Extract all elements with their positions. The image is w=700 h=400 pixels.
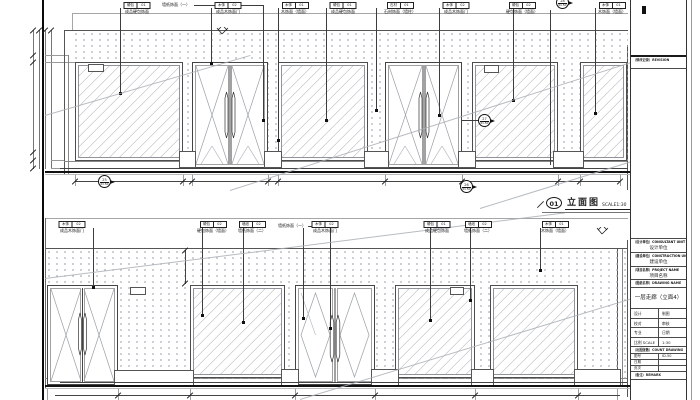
double-door — [385, 62, 462, 168]
revision-header: （修改记录）REVISION — [631, 57, 686, 68]
material-tag: 石材01 石材饰面（墙柱） — [384, 2, 416, 14]
consultant-label-en: （设计单位）CONSULTANT UNIT — [631, 239, 686, 245]
floor-line-light — [45, 174, 630, 175]
material-tag: 硬包01 成品硬包饰面 — [424, 221, 451, 233]
material-tag-text: 墙纸饰面（一） — [162, 2, 190, 7]
tag-label: 成品木饰面门 — [59, 228, 86, 233]
tag-code-box: 02 — [214, 221, 227, 228]
tag-code-box: 硬包 — [200, 221, 214, 228]
tag-code-box: 木饰 — [282, 2, 296, 9]
panel-vent — [450, 287, 464, 295]
tag-code-box: 02 — [73, 221, 86, 228]
top-cornice-step — [72, 13, 73, 30]
title-block-stamp — [642, 6, 646, 14]
floor-line-thick — [45, 171, 630, 173]
tag-code-box: 01 — [438, 221, 451, 228]
tag-leader — [278, 8, 279, 140]
tag-label: 硬包饰面（墙面） — [506, 9, 538, 14]
glazed-panel — [278, 62, 368, 161]
count-header: （出图张数）COUNT DRAWING — [631, 346, 686, 353]
tag-label: 成品木饰面门 — [312, 228, 339, 233]
title-block: （修改记录）REVISION （设计单位）CONSULTANT UNIT 设计单… — [630, 0, 687, 400]
staff-cell: 制图 — [659, 309, 686, 318]
staff-cell: 设计 — [631, 309, 659, 318]
double-door — [47, 285, 118, 385]
panel-vent — [88, 64, 104, 72]
tag-label: 成品木饰面门 — [215, 9, 242, 14]
dim-line — [39, 30, 40, 169]
wall-vent — [130, 287, 146, 295]
elevation-title-text: 立面图 — [567, 195, 600, 208]
drawing-name-header: （图纸名称）DRAWING NAME — [631, 279, 686, 287]
tag-code-box: 02 — [479, 221, 492, 228]
tag-leader — [202, 228, 203, 315]
material-tag: 墙纸02 墙纸饰面（二） — [238, 221, 266, 233]
tag-code-box: 01 — [401, 2, 414, 9]
door-symbol — [47, 285, 118, 385]
floor-line — [60, 168, 628, 169]
glazed-panel — [395, 285, 475, 378]
detail-marker: 25 ID-50 — [98, 175, 111, 188]
baseboard-line — [64, 161, 627, 162]
tag-label: 墙纸饰面（二） — [238, 228, 266, 233]
title-slash — [537, 201, 544, 208]
dim-extension — [45, 62, 75, 63]
construction-label-cn: 建设单位 — [631, 259, 686, 266]
detail-leader — [462, 120, 478, 121]
dim-extension — [51, 160, 64, 161]
staff-row: 设计 制图 — [631, 308, 686, 318]
tag-code-box: 硬包 — [509, 2, 523, 9]
tag-code-box: 01 — [296, 2, 309, 9]
detail-marker: 28 ID-50 — [556, 0, 569, 9]
staff-cell: 比例 SCALE — [631, 338, 659, 346]
door-symbol — [192, 62, 268, 168]
tag-label: 硬包饰面（墙面） — [197, 228, 229, 233]
panel-vent — [484, 65, 499, 73]
construction-row: （建设单位）CONSTRUCTION UNIT 建设单位 — [631, 252, 686, 266]
base-block — [371, 369, 399, 386]
tag-code-box: 02 — [457, 2, 470, 9]
tag-leader — [595, 8, 596, 113]
staff-cell: 专业 — [631, 328, 659, 337]
remark-header: （备注）REMARK — [631, 371, 686, 379]
floor-line — [60, 382, 627, 383]
door-symbol — [385, 62, 462, 168]
sheet-right-edge — [691, 0, 692, 400]
tag-code-box: 01 — [556, 221, 569, 228]
base-block — [281, 369, 299, 386]
tag-label: 成品木饰面门 — [443, 9, 470, 14]
tag-leader — [93, 228, 94, 287]
detail-marker: 27 ID-50 — [478, 114, 491, 127]
remark-area — [631, 379, 686, 400]
staff-cell: 日期 — [659, 328, 686, 337]
revision-area — [631, 68, 686, 238]
material-tag: 木饰01 木饰面（墙面） — [541, 221, 569, 233]
construction-label-en: （建设单位）CONSTRUCTION UNIT — [631, 253, 686, 259]
base-block — [471, 369, 494, 386]
tag-label: 石材饰面（墙柱） — [384, 9, 416, 14]
tag-code-box: 02 — [229, 2, 242, 9]
material-tag: 木饰02 成品木饰面门 — [215, 2, 242, 14]
material-tag: 木饰02 成品木饰面门 — [312, 221, 339, 233]
datum-arrow-icon — [216, 27, 230, 36]
tag-code-box: 木饰 — [312, 221, 326, 228]
base-block — [574, 369, 621, 386]
tag-code-box: 01 — [344, 2, 357, 9]
material-tag: 墙纸02 墙纸饰面（二） — [464, 221, 492, 233]
tag-leader — [513, 8, 514, 100]
tag-leader — [430, 228, 431, 320]
tag-code-box: 02 — [523, 2, 536, 9]
tag-leader — [120, 8, 121, 93]
double-door — [295, 285, 375, 385]
staff-cell: 审核 — [659, 319, 686, 327]
drawing-sheet: 25 ID-50 26 ID-50 27 ID-50 28 ID-50 硬包01… — [0, 0, 700, 400]
tag-code-box: 02 — [326, 221, 339, 228]
glazed-panel — [75, 62, 183, 161]
tag-code-box: 木饰 — [59, 221, 73, 228]
bottom-cornice-line — [45, 218, 628, 219]
consultant-label-cn: 设计单位 — [631, 245, 686, 252]
tag-leader — [540, 228, 541, 270]
tag-code-box: 墙纸 — [239, 221, 253, 228]
glazed-panel — [490, 285, 578, 378]
tag-code-box: 01 — [138, 2, 151, 9]
base-block — [264, 151, 282, 168]
detail-marker-arrow — [472, 185, 477, 189]
tag-label: 墙纸饰面（一） — [162, 2, 190, 7]
material-tag: 木饰01 木饰面（墙面） — [598, 2, 626, 14]
tag-code-box: 石材 — [387, 2, 401, 9]
staff-row: 比例 SCALE 1:30 — [631, 337, 686, 346]
tag-code-box: 墙纸 — [465, 221, 479, 228]
dim-line — [51, 30, 52, 169]
title-underline — [565, 209, 631, 210]
base-block — [179, 151, 196, 168]
project-label-en: （项目名称）PROJECT NAME — [631, 267, 686, 273]
wall-end-line — [64, 30, 65, 174]
dim-tick — [30, 165, 36, 171]
elevation-scale-text: SCALE1:30 — [602, 203, 627, 208]
tag-code-box: 木饰 — [599, 2, 613, 9]
staff-cell: 校对 — [631, 319, 659, 327]
tag-leader — [263, 5, 264, 120]
detail-marker-arrow — [110, 180, 115, 184]
tag-code-box: 木饰 — [542, 221, 556, 228]
sheet-left-border — [42, 0, 44, 400]
base-block — [553, 151, 584, 168]
elevation-number-circle: 01 — [546, 197, 562, 209]
tag-leader — [211, 8, 212, 63]
material-tag: 硬包02 硬包饰面（墙面） — [506, 2, 538, 14]
dim-line — [75, 181, 620, 182]
tag-label: 墙纸饰面（二） — [464, 228, 492, 233]
tag-label: 成品硬包饰面 — [124, 9, 151, 14]
tag-leader — [326, 8, 327, 120]
base-block — [458, 151, 476, 168]
dim-extension — [47, 389, 48, 400]
drawing-name-cell: 一层走廊（立面4） — [631, 287, 686, 308]
tag-label: 木饰面（墙面） — [281, 9, 309, 14]
consultant-row: （设计单位）CONSULTANT UNIT 设计单位 — [631, 238, 686, 252]
material-tag: 木饰02 成品木饰面门 — [59, 221, 86, 233]
tag-leader — [376, 8, 377, 110]
tag-code-box: 硬包 — [124, 2, 138, 9]
tag-leader — [439, 8, 440, 115]
tag-code-box: 木饰 — [443, 2, 457, 9]
door-symbol — [295, 285, 375, 385]
wall-end-line — [68, 55, 69, 174]
project-row: （项目名称）PROJECT NAME 项目名称 — [631, 266, 686, 279]
tag-leader — [470, 228, 471, 300]
tag-label: 成品硬包饰面 — [330, 9, 357, 14]
base-block — [114, 370, 194, 386]
dim-line — [45, 30, 46, 169]
tag-code-box: 硬包 — [424, 221, 438, 228]
material-tag: 硬包02 硬包饰面（墙面） — [197, 221, 229, 233]
tag-label: 木饰面（墙面） — [541, 228, 569, 233]
base-block — [364, 151, 389, 168]
datum-arrow-icon — [596, 227, 610, 236]
tag-label: 成品硬包饰面 — [424, 228, 451, 233]
material-tag: 硬包01 成品硬包饰面 — [124, 2, 151, 14]
detail-marker: 26 ID-50 — [460, 180, 473, 193]
tag-code-box: 02 — [253, 221, 266, 228]
staff-row: 专业 日期 — [631, 327, 686, 337]
glazed-panel — [472, 62, 558, 161]
detail-marker-arrow — [490, 119, 495, 123]
tag-code-box: 01 — [613, 2, 626, 9]
tag-label: 木饰面（墙面） — [598, 9, 626, 14]
tag-code-box: 木饰 — [215, 2, 229, 9]
dim-line — [55, 395, 620, 396]
detail-marker-arrow — [568, 1, 573, 5]
material-tag: 硬包01 成品硬包饰面 — [330, 2, 357, 14]
title-underline-2 — [542, 212, 634, 213]
tag-leader — [303, 228, 304, 318]
material-tag: 木饰02 成品木饰面门 — [443, 2, 470, 14]
elevation-title: 01 立面图 SCALE1:30 — [540, 195, 635, 215]
material-tag-text: 墙纸饰面（一） — [278, 223, 306, 228]
glazed-panel — [190, 285, 285, 378]
tag-label: 墙纸饰面（一） — [278, 223, 306, 228]
staff-cell: 1:30 — [659, 338, 686, 346]
tag-leader — [243, 228, 244, 322]
tag-code-box: 硬包 — [330, 2, 344, 9]
material-tag: 木饰01 木饰面（墙面） — [281, 2, 309, 14]
dim-line — [185, 250, 186, 284]
double-door — [192, 62, 268, 168]
dim-line — [33, 30, 34, 169]
staff-row: 校对 审核 — [631, 318, 686, 327]
